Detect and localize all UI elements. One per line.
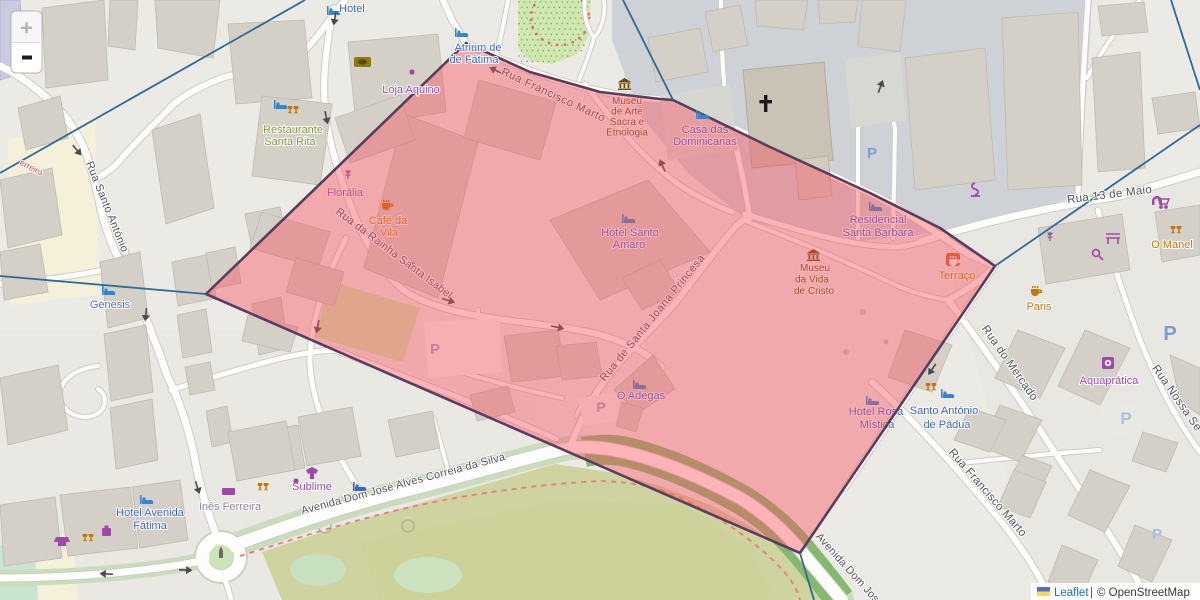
svg-text:Leaflet: Leaflet [1054, 587, 1089, 599]
svg-text:de Pádua: de Pádua [923, 419, 971, 431]
svg-text:P: P [1152, 526, 1162, 543]
svg-text:Genesis: Genesis [90, 299, 131, 311]
svg-text:Santo António: Santo António [910, 405, 979, 417]
svg-text:P: P [1120, 409, 1131, 428]
svg-text:Aquaprática: Aquaprática [1080, 375, 1140, 387]
svg-text:|: | [1090, 587, 1093, 599]
svg-text:Atrium de: Atrium de [454, 42, 501, 54]
svg-text:de Fátima: de Fátima [450, 54, 500, 66]
svg-text:Fátima: Fátima [133, 520, 168, 532]
svg-text:Sublime: Sublime [292, 481, 332, 493]
svg-text:Loja Aquino: Loja Aquino [382, 84, 440, 96]
svg-text:Hotel Avenida: Hotel Avenida [116, 507, 185, 519]
svg-text:© OpenStreetMap: © OpenStreetMap [1097, 587, 1190, 599]
svg-text:Hotel: Hotel [339, 3, 365, 15]
svg-text:P: P [1163, 323, 1176, 345]
svg-text:Santa Rita: Santa Rita [264, 136, 316, 148]
svg-text:Paris: Paris [1026, 301, 1052, 313]
svg-text:Restaurante: Restaurante [263, 124, 323, 136]
svg-text:P: P [867, 145, 877, 162]
svg-text:O Manel: O Manel [1151, 239, 1193, 251]
svg-text:Inês Ferreira: Inês Ferreira [199, 501, 262, 513]
